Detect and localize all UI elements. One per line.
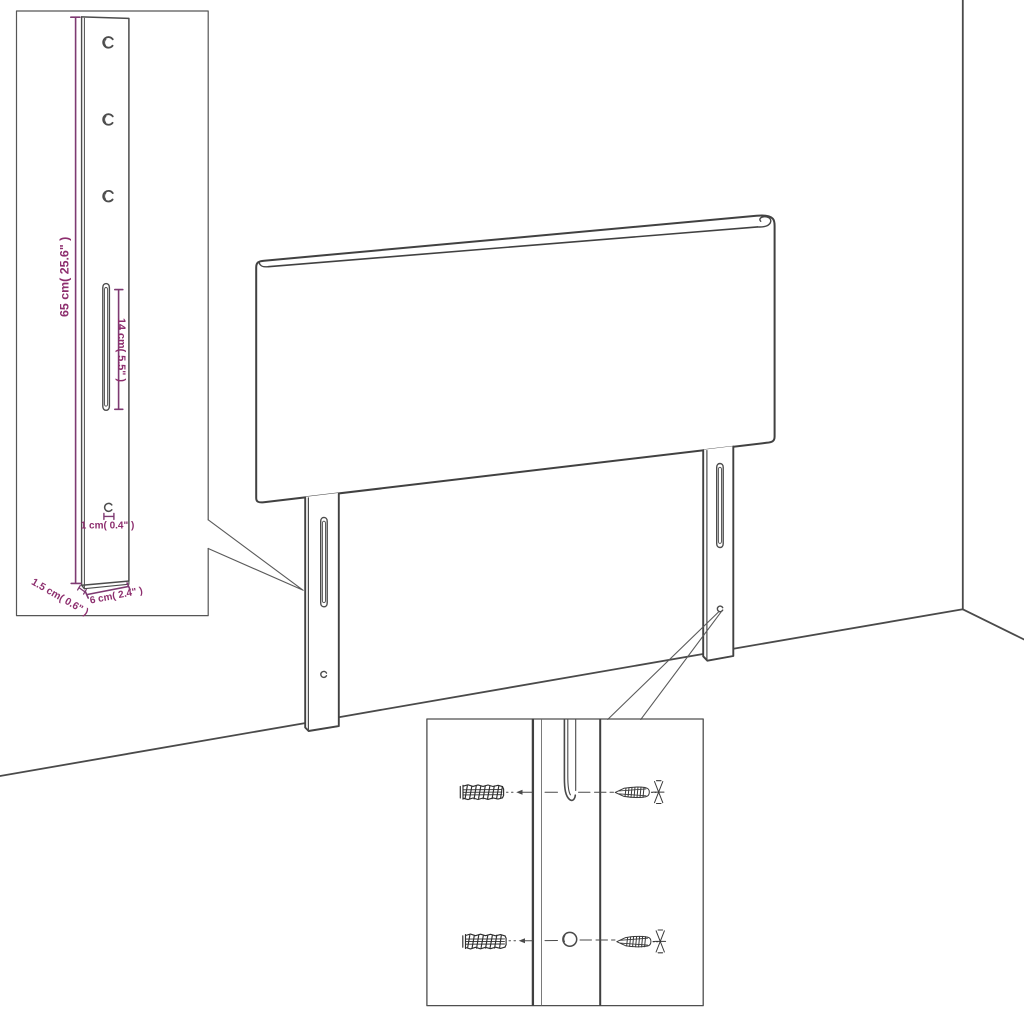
svg-text:65 cm( 25.6" ): 65 cm( 25.6" )	[58, 237, 72, 317]
svg-text:14 cm( 5.5" ): 14 cm( 5.5" )	[115, 318, 127, 382]
svg-text:1 cm( 0.4" ): 1 cm( 0.4" )	[81, 521, 135, 532]
